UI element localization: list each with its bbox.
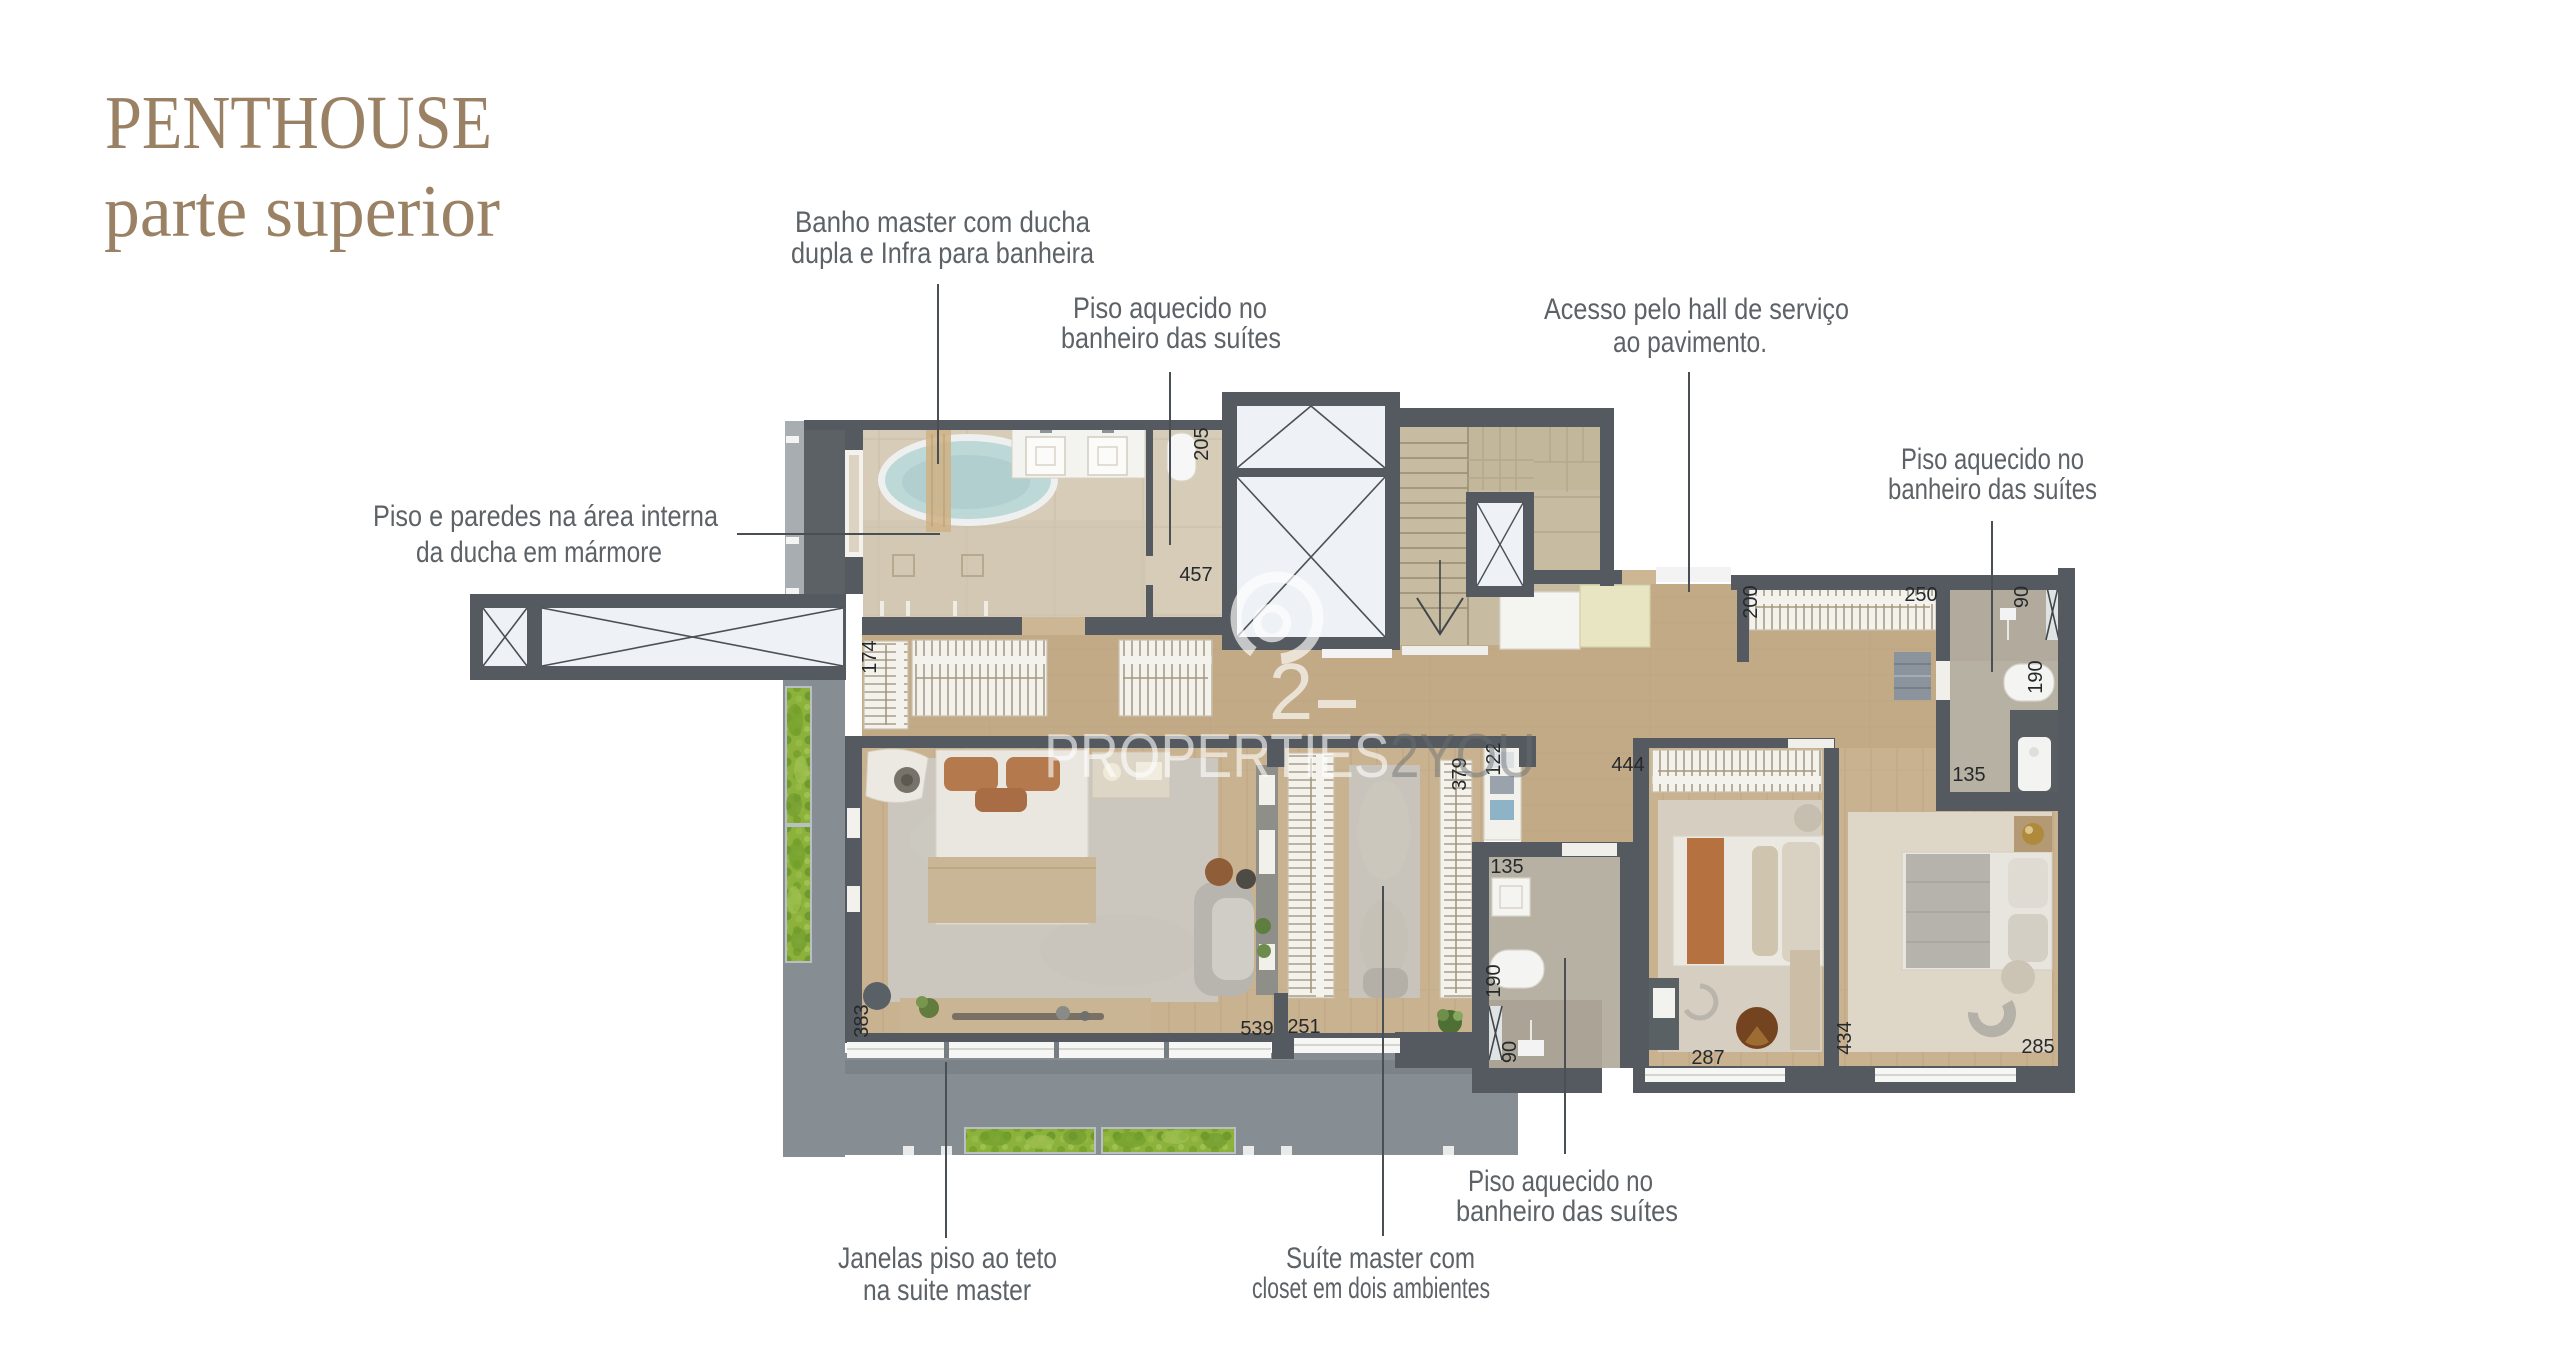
svg-text:444: 444 — [1611, 754, 1644, 776]
svg-text:90: 90 — [2011, 586, 2033, 608]
svg-text:Suíte master com: Suíte master com — [1286, 1242, 1475, 1275]
svg-text:434: 434 — [1834, 1021, 1856, 1054]
svg-text:135: 135 — [1952, 764, 1985, 786]
svg-text:383: 383 — [851, 1004, 873, 1037]
svg-text:parte superior: parte superior — [104, 171, 500, 253]
svg-text:dupla e Infra para banheira: dupla e Infra para banheira — [791, 237, 1094, 270]
svg-text:190: 190 — [2025, 660, 2047, 693]
svg-text:na suite master: na suite master — [863, 1274, 1031, 1307]
svg-text:205: 205 — [1191, 427, 1213, 460]
svg-text:174: 174 — [859, 640, 881, 673]
svg-text:287: 287 — [1691, 1047, 1724, 1069]
svg-text:285: 285 — [2021, 1036, 2054, 1058]
svg-text:Piso e paredes na área interna: Piso e paredes na área interna — [373, 500, 718, 533]
svg-text:457: 457 — [1179, 564, 1212, 586]
svg-text:ao pavimento.: ao pavimento. — [1613, 326, 1767, 359]
svg-text:Acesso pelo hall de serviço: Acesso pelo hall de serviço — [1544, 293, 1849, 326]
svg-text:Janelas piso ao teto: Janelas piso ao teto — [838, 1242, 1057, 1275]
svg-text:PROPERTIES2YOU: PROPERTIES2YOU — [1044, 722, 1536, 791]
svg-text:da ducha em mármore: da ducha em mármore — [416, 536, 662, 569]
svg-text:banheiro das suítes: banheiro das suítes — [1456, 1195, 1678, 1228]
svg-text:banheiro das suítes: banheiro das suítes — [1061, 322, 1281, 355]
svg-text:banheiro das suítes: banheiro das suítes — [1888, 473, 2097, 506]
svg-text:190: 190 — [1483, 964, 1505, 997]
svg-text:135: 135 — [1490, 856, 1523, 878]
svg-text:closet em dois ambientes: closet em dois ambientes — [1252, 1272, 1490, 1305]
svg-text:Banho master com ducha: Banho master com ducha — [795, 206, 1090, 239]
svg-text:Piso aquecido no: Piso aquecido no — [1468, 1165, 1653, 1198]
svg-text:Piso aquecido no: Piso aquecido no — [1901, 443, 2084, 476]
svg-text:200: 200 — [1740, 585, 1762, 618]
svg-text:251: 251 — [1287, 1016, 1320, 1038]
svg-text:Piso aquecido no: Piso aquecido no — [1073, 292, 1267, 325]
svg-text:PENTHOUSE: PENTHOUSE — [105, 81, 492, 165]
svg-text:90: 90 — [1499, 1041, 1521, 1063]
svg-text:250: 250 — [1904, 584, 1937, 606]
svg-text:539: 539 — [1240, 1018, 1273, 1040]
